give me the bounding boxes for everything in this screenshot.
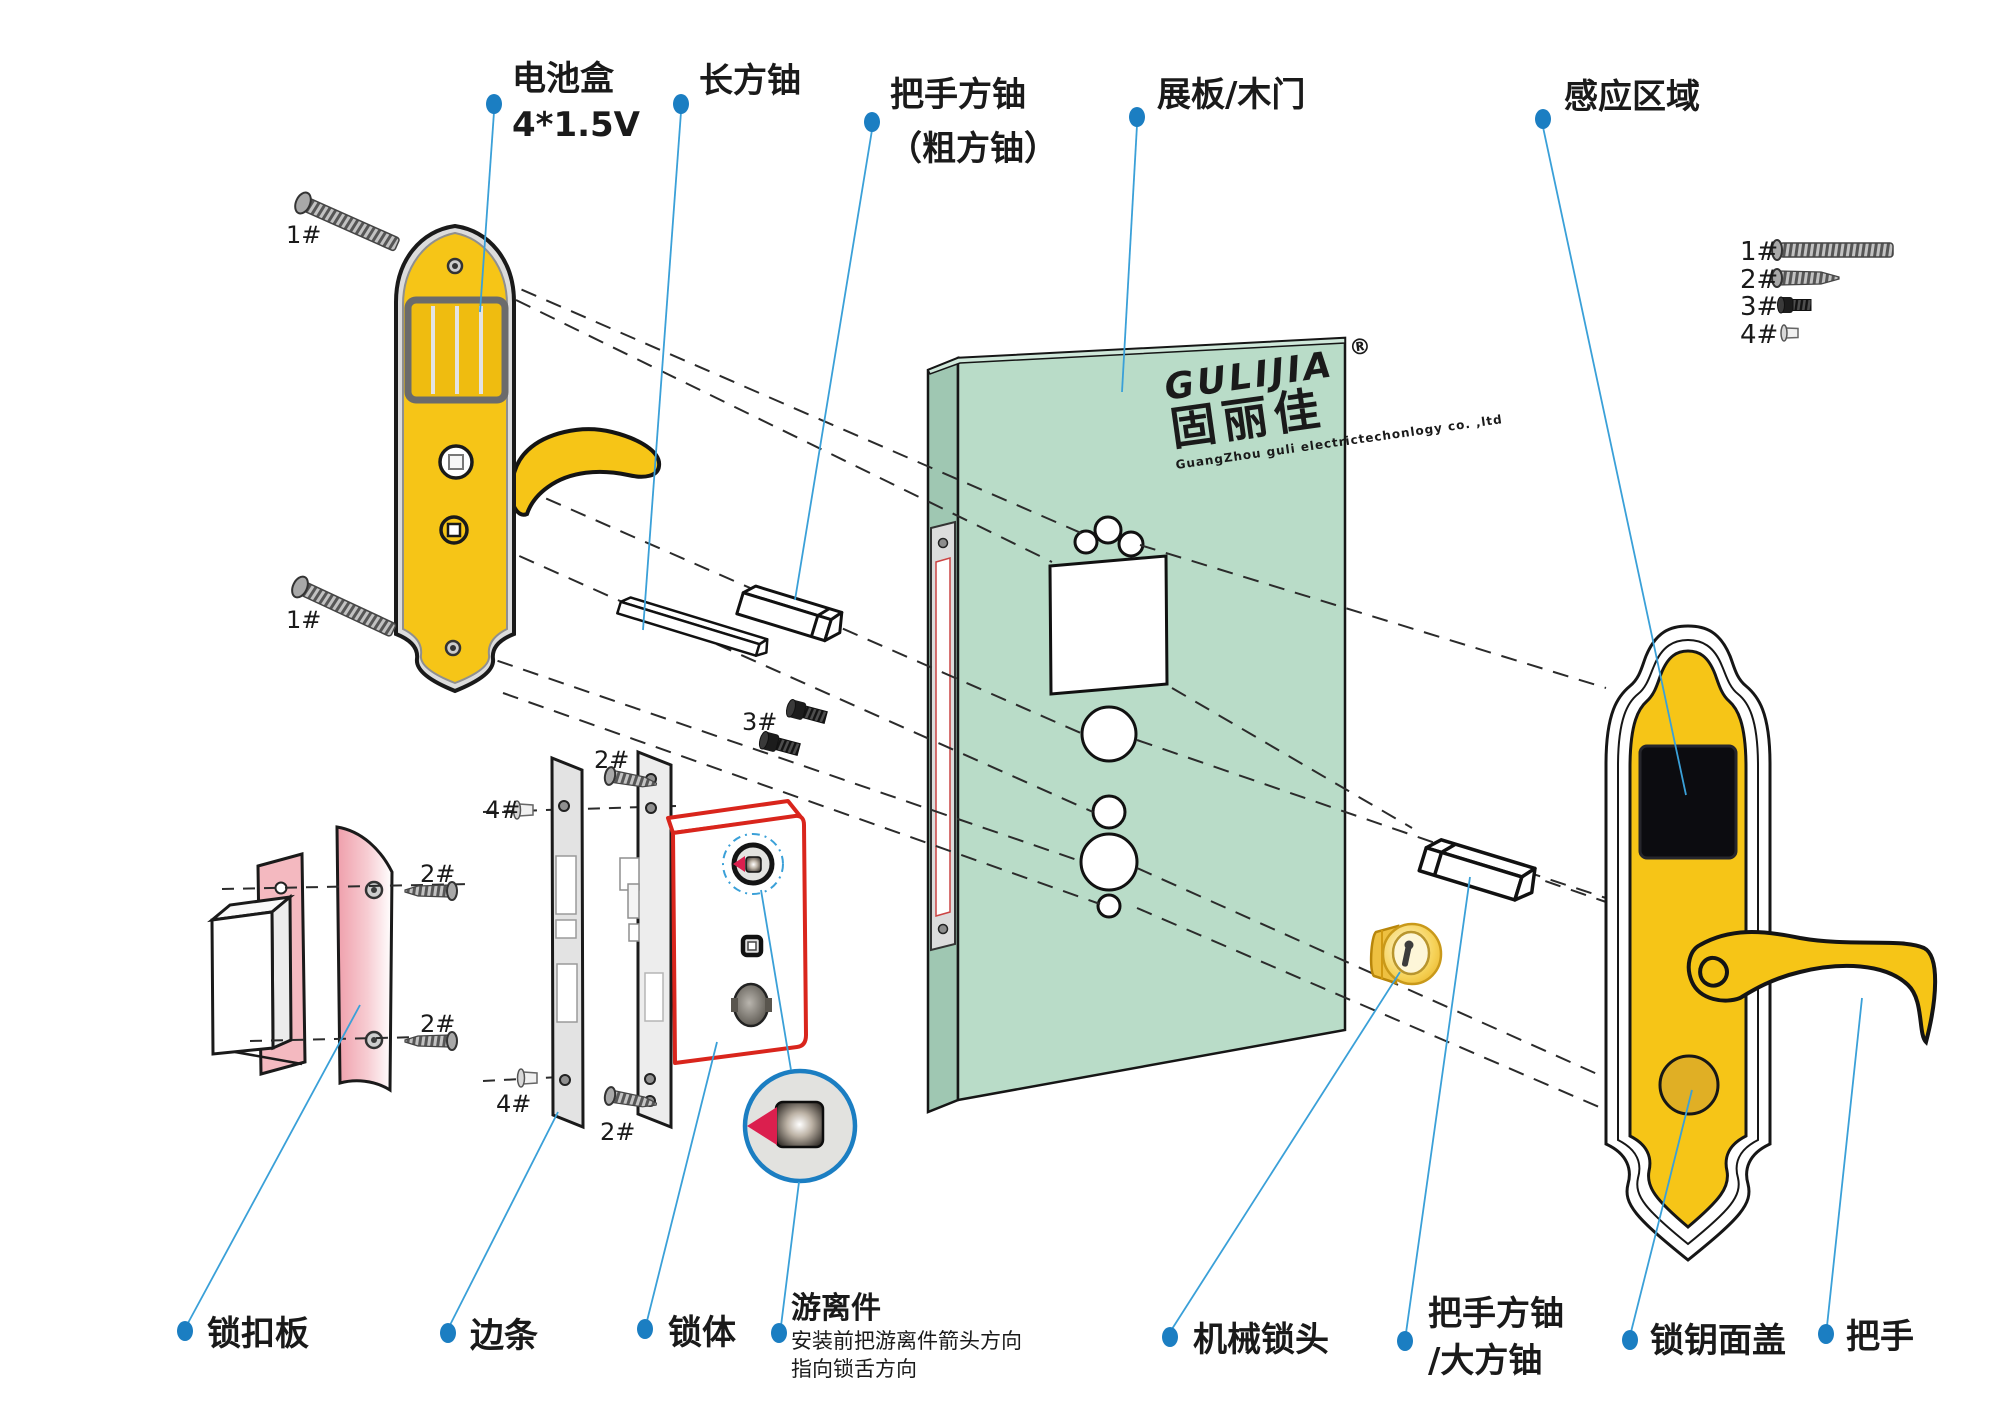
callout-screw-3: 3# — [742, 708, 777, 736]
callout-dot — [1535, 109, 1551, 129]
label-edge-strip: 边条 — [470, 1316, 538, 1356]
label-floating-part: 游离件 — [791, 1291, 881, 1326]
label-long-spindle: 长方铀 — [699, 61, 801, 101]
strike-plate — [337, 827, 392, 1090]
callout-dot — [771, 1323, 787, 1343]
callout-dot — [1818, 1324, 1834, 1344]
label-big-spindle-2: /大方铀 — [1428, 1341, 1542, 1381]
callout-screw-2: 2# — [600, 1118, 635, 1146]
legend-screw-2: 2# — [1740, 265, 1778, 295]
legend-screw-3: 3# — [1740, 292, 1778, 322]
screw-1-icon — [1772, 240, 1893, 260]
floating-part-magnifier — [745, 1071, 855, 1181]
dust-box-front — [212, 912, 273, 1054]
callout-screw-4: 4# — [485, 796, 520, 824]
diagram-canvas: GULIJIA ® 固丽佳 GuangZhou guli electrictec… — [0, 0, 2008, 1417]
callout-screw-2: 2# — [420, 860, 455, 888]
lock-exploded-diagram: GULIJIA ® 固丽佳 GuangZhou guli electrictec… — [0, 0, 2008, 1417]
screw-4-icon — [1781, 325, 1798, 341]
callout-dot — [177, 1321, 193, 1341]
mech-cylinder — [1371, 924, 1441, 984]
callout-dot — [673, 94, 689, 114]
lock-body — [668, 801, 806, 1063]
screw-2-icon — [1772, 269, 1839, 287]
legend-screw-1: 1# — [1740, 237, 1778, 267]
dust-box-side — [272, 897, 291, 1048]
callout-dot — [637, 1319, 653, 1339]
label-big-spindle: 把手方铀 — [1428, 1294, 1564, 1334]
strike-plate-group — [212, 827, 392, 1090]
label-handle: 把手 — [1846, 1317, 1914, 1357]
label-door-panel: 展板/木门 — [1157, 75, 1305, 115]
callout-dot — [1129, 107, 1145, 127]
latch-bolt — [629, 924, 639, 941]
label-battery-spec: 4*1.5V — [512, 105, 641, 145]
callout-dot — [864, 112, 880, 132]
battery-compartment — [408, 300, 505, 400]
screw-legend — [1772, 240, 1893, 341]
label-mech-cylinder: 机械锁头 — [1193, 1320, 1329, 1360]
label-lock-body: 锁体 — [668, 1313, 736, 1353]
callout-screw-1: 1# — [286, 606, 321, 634]
label-handle-spindle-2: （粗方铀） — [888, 129, 1058, 169]
edge-strip-left — [552, 758, 583, 1127]
callout-screw-4: 4# — [496, 1090, 531, 1118]
big-spindle-bar — [1419, 836, 1539, 904]
inner-handle — [512, 429, 660, 515]
screw-4-icon — [518, 1069, 538, 1087]
callout-screw-2: 2# — [420, 1010, 455, 1038]
label-sensing-area: 感应区域 — [1564, 77, 1700, 117]
callout-dot — [440, 1323, 456, 1343]
callout-dot — [1397, 1331, 1413, 1351]
callout-dot — [1162, 1327, 1178, 1347]
outer-panel-group — [1606, 626, 1935, 1260]
registered-mark-icon: ® — [1347, 334, 1372, 362]
label-floating-note-2: 指向锁舌方向 — [791, 1357, 917, 1381]
lock-faceplate-strip — [620, 752, 671, 1127]
door-mortise-plate — [931, 522, 955, 950]
callout-dot — [1622, 1330, 1638, 1350]
callout-screw-1: 1# — [286, 221, 321, 249]
label-strike-plate: 锁扣板 — [207, 1314, 309, 1354]
label-key-cover: 锁钥面盖 — [1650, 1321, 1786, 1361]
label-floating-note-1: 安装前把游离件箭头方向 — [791, 1329, 1022, 1353]
screw-3-icon — [1778, 297, 1812, 313]
callout-dot — [486, 94, 502, 114]
label-battery-box: 电池盒 — [512, 59, 615, 99]
sensing-screen — [1640, 746, 1736, 858]
legend-screw-4: 4# — [1740, 320, 1778, 350]
label-handle-spindle: 把手方铀 — [890, 75, 1026, 115]
inner-panel-group — [396, 226, 659, 691]
callout-screw-2: 2# — [594, 746, 629, 774]
cylinder-hole — [734, 984, 768, 1026]
screw-3-icon — [785, 699, 828, 727]
